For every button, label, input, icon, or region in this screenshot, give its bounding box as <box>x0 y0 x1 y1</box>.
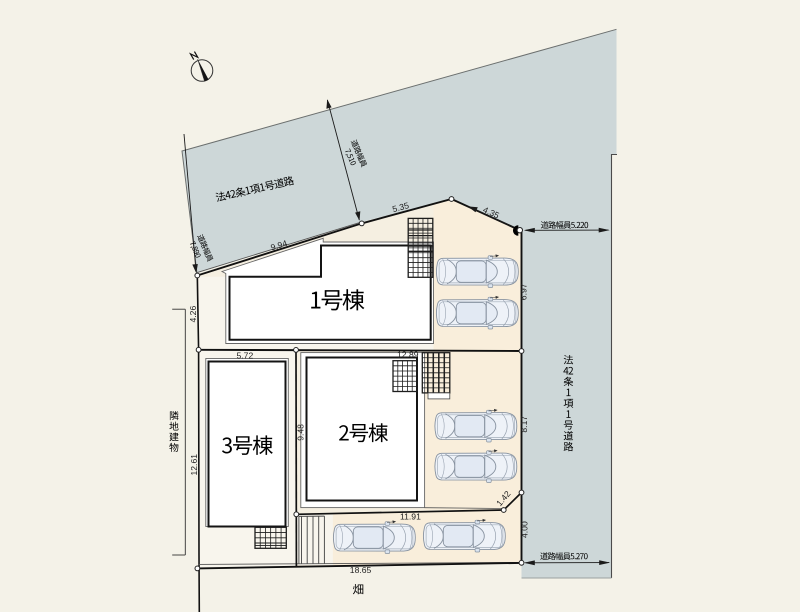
svg-text:8.17: 8.17 <box>519 416 529 433</box>
svg-text:5.72: 5.72 <box>237 351 254 361</box>
svg-text:4.00: 4.00 <box>520 521 530 538</box>
svg-text:4.26: 4.26 <box>188 306 198 323</box>
svg-text:12.89: 12.89 <box>397 349 419 359</box>
svg-text:11.91: 11.91 <box>400 511 421 521</box>
svg-text:12.61: 12.61 <box>189 454 199 476</box>
svg-text:18.65: 18.65 <box>350 565 372 575</box>
svg-text:6.97: 6.97 <box>519 283 529 300</box>
svg-text:9.48: 9.48 <box>295 424 305 441</box>
